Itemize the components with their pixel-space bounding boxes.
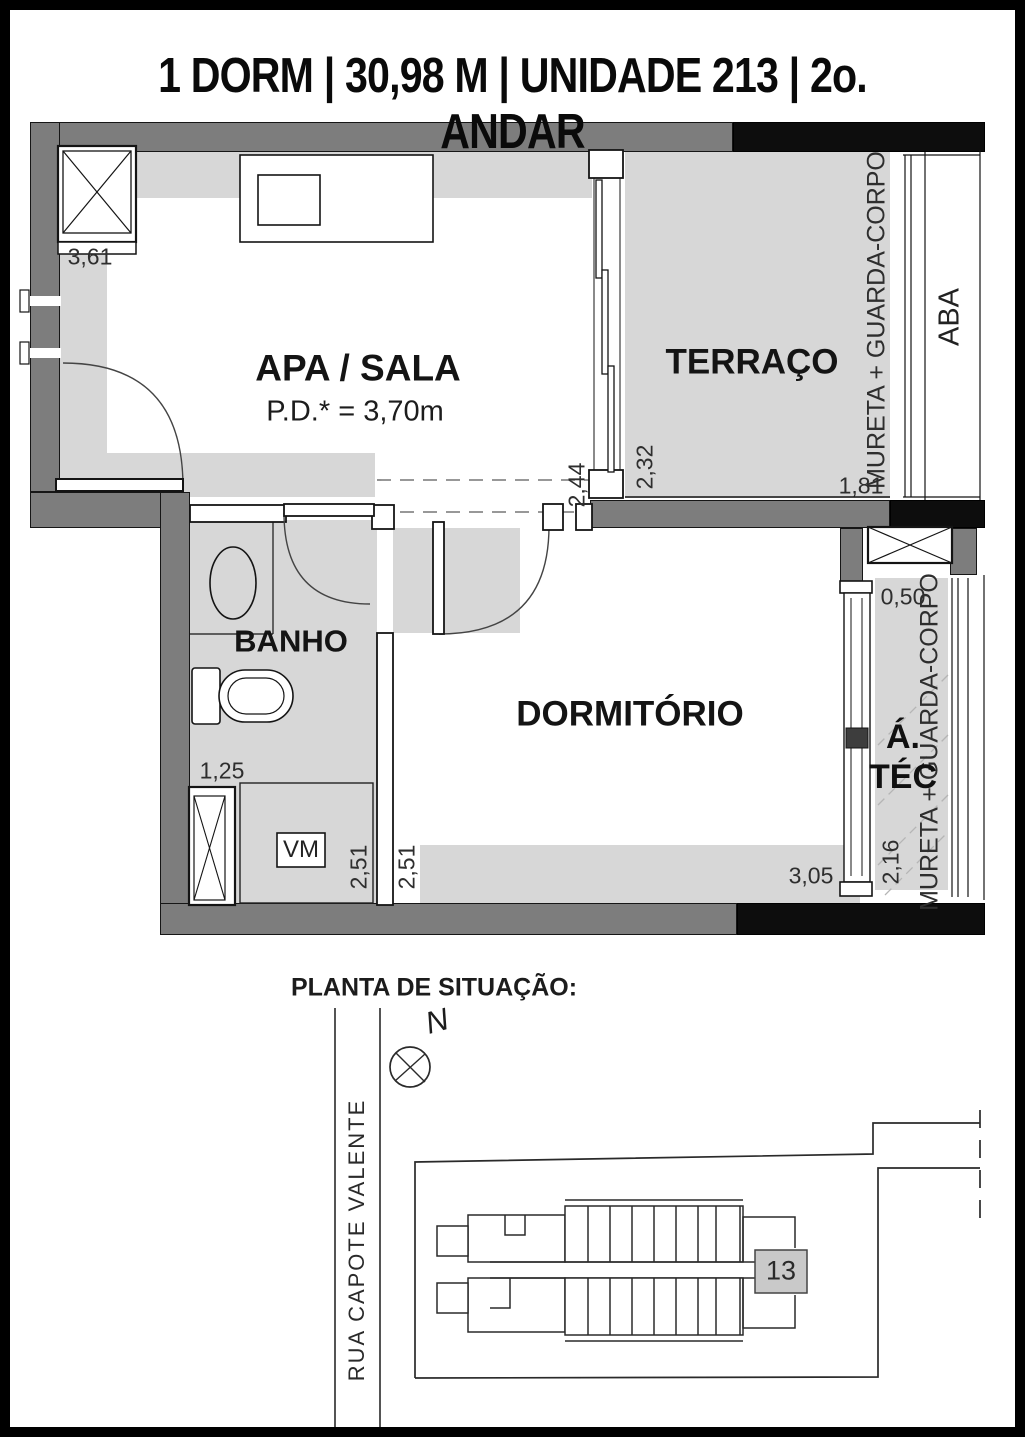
- room-label-atec-line2: TÉC: [869, 757, 937, 797]
- floor-plan-page: 1 DORM | 30,98 M | UNIDADE 213 | 2o. AND…: [0, 0, 1025, 1437]
- room-label-dormitorio: DORMITÓRIO: [516, 697, 743, 732]
- wall-stub-right: [950, 528, 977, 575]
- building-footprint: [437, 1200, 807, 1341]
- lot-boundary: [415, 1110, 980, 1378]
- north-arrow-icon: [390, 1047, 430, 1087]
- terraco-floor: [625, 152, 890, 498]
- room-label-sala-pd: P.D.* = 3,70m: [266, 398, 444, 427]
- dim-2-51-b: 2,51: [396, 845, 419, 890]
- street-name-label: RUA CAPOTE VALENTE: [346, 1099, 368, 1382]
- wall-bottom-black: [737, 903, 985, 935]
- dim-1-25: 1,25: [200, 760, 245, 783]
- shaft-atec-icon: [868, 527, 952, 563]
- unit-13-label: 13: [766, 1258, 796, 1285]
- dim-2-16: 2,16: [880, 840, 903, 885]
- dim-2-51-a: 2,51: [348, 845, 371, 890]
- aba-label: ABA: [936, 288, 965, 346]
- mureta-label-top: MURETA + GUARDA-CORPO: [865, 151, 890, 489]
- sala-floor-band-bottom: [63, 453, 375, 497]
- wall-mid-right-black: [890, 500, 985, 528]
- sala-floor-band-left: [60, 152, 107, 492]
- room-label-sala: APA / SALA: [255, 350, 461, 387]
- wall-left: [30, 122, 60, 492]
- wall-stub-window-top: [840, 528, 863, 585]
- page-title: 1 DORM | 30,98 M | UNIDADE 213 | 2o. AND…: [0, 48, 1025, 160]
- dim-3-05: 3,05: [789, 865, 834, 888]
- wall-bottom-gray: [160, 903, 737, 935]
- dim-2-44: 2,44: [566, 463, 589, 508]
- terraco-slider: [589, 150, 623, 498]
- situacao-heading: PLANTA DE SITUAÇÃO:: [291, 976, 577, 1001]
- vm-label: VM: [283, 838, 319, 862]
- north-letter: N: [422, 1003, 452, 1039]
- room-label-atec-line1: Á.: [869, 717, 937, 757]
- room-label-atec: Á. TÉC: [869, 717, 937, 797]
- room-label-banho: BANHO: [234, 626, 348, 657]
- wall-banho-left: [160, 492, 190, 935]
- banho-dorm-partition: [377, 633, 393, 905]
- wall-mid-right-gray: [590, 500, 890, 528]
- dim-3-61: 3,61: [68, 246, 113, 269]
- dormitorio-entry-floor-patch: [393, 528, 520, 633]
- dim-2-32: 2,32: [634, 445, 657, 490]
- page-title-text: 1 DORM | 30,98 M | UNIDADE 213 | 2o. AND…: [82, 48, 943, 160]
- room-label-terraco: TERRAÇO: [665, 345, 838, 380]
- guard-rail-right: [952, 575, 984, 900]
